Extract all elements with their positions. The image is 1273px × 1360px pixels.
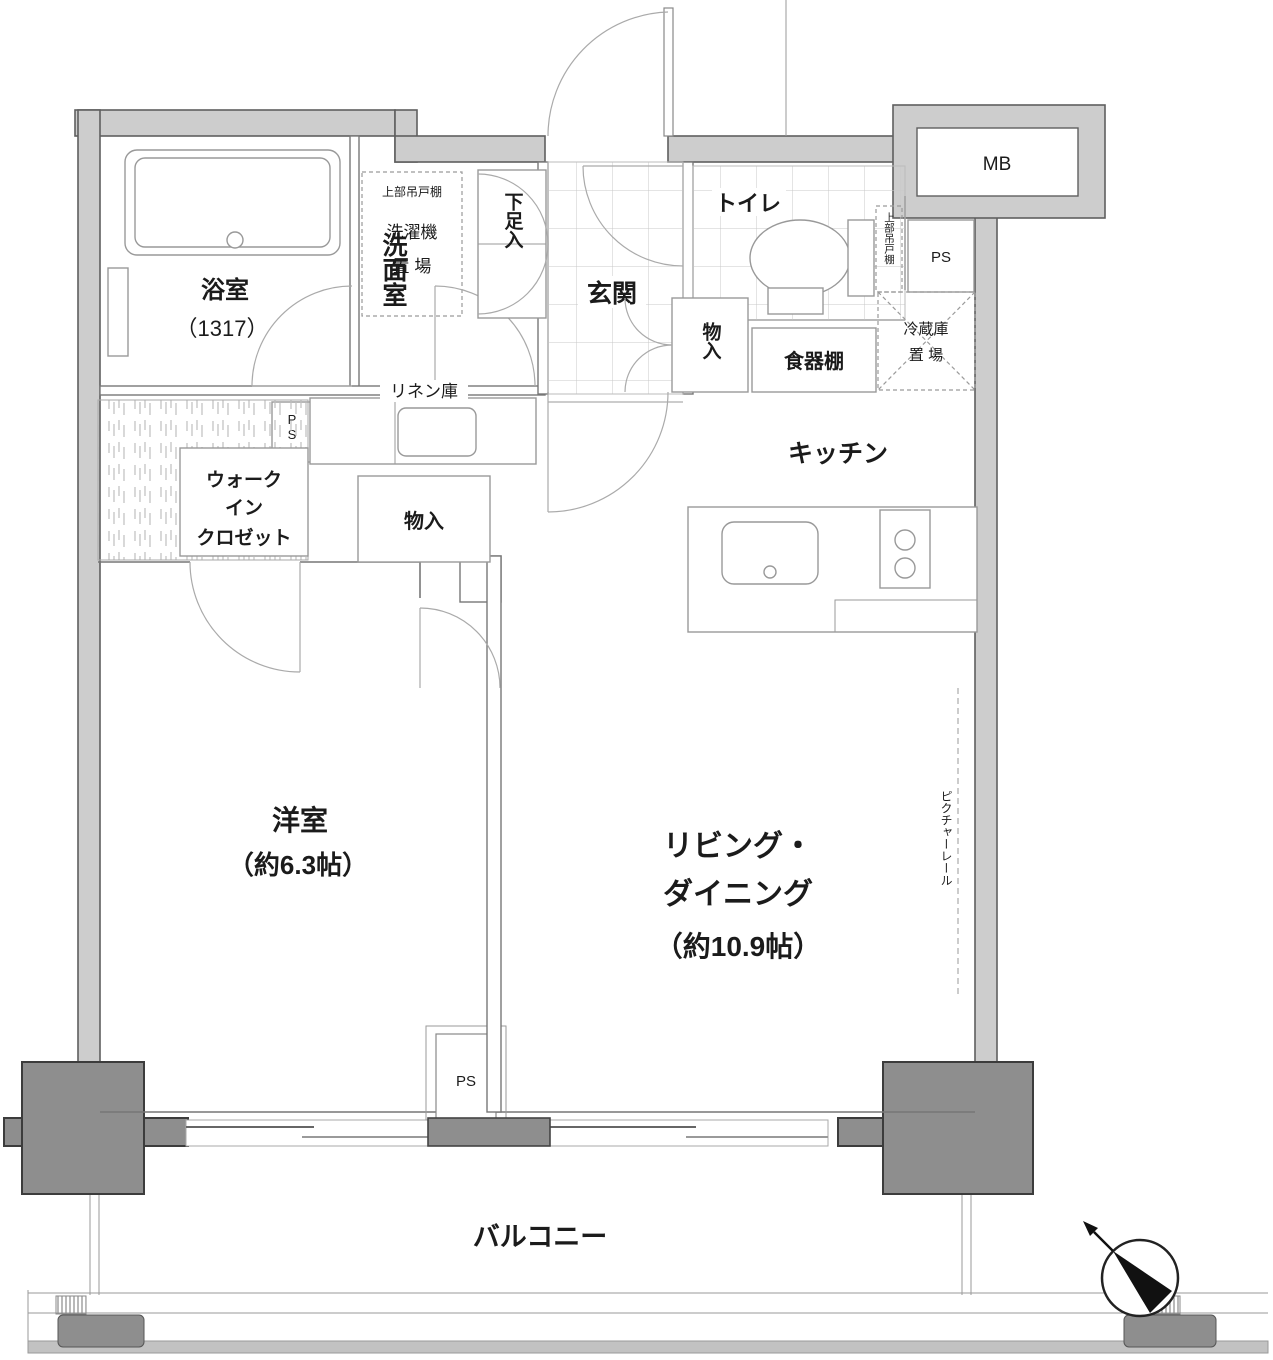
wic-door bbox=[190, 562, 300, 672]
picture-rail-label: ピクチャーレール bbox=[939, 790, 953, 886]
pillar-bottom-right bbox=[838, 1062, 1033, 1194]
entrance-door bbox=[548, 8, 673, 136]
toilet-fixture bbox=[750, 220, 874, 296]
balcony-railing bbox=[28, 1290, 1268, 1353]
floor-plan-page: バルコニー MB bbox=[0, 0, 1273, 1360]
living-label-3: （約10.9帖） bbox=[655, 930, 822, 962]
ps-top-label: PS bbox=[931, 249, 951, 266]
picture-rail: ピクチャーレール bbox=[939, 688, 958, 995]
center-closet-label: 物入 bbox=[404, 509, 444, 533]
fridge-label-2: 置 場 bbox=[909, 347, 943, 364]
living-label-2: ダイニング bbox=[663, 877, 813, 911]
shoe-cabinet-label: 下足入 bbox=[502, 192, 524, 249]
shoe-cabinet: 下足入 bbox=[478, 170, 548, 318]
hall-closet-label: 物入 bbox=[700, 321, 722, 360]
bath-counter bbox=[108, 268, 128, 356]
balcony: バルコニー bbox=[28, 1194, 1268, 1353]
washroom-label: 洗面室 bbox=[379, 232, 408, 307]
living-dining: リビング・ ダイニング （約10.9帖） ピクチャーレール bbox=[655, 688, 958, 995]
walk-in-closet: ウォーク イン クロゼット bbox=[98, 400, 308, 672]
western-room: 洋室 （約6.3帖） bbox=[228, 804, 368, 880]
living-label-1: リビング・ bbox=[663, 830, 813, 863]
bathtub-drain bbox=[227, 232, 243, 248]
meter-box: MB bbox=[893, 105, 1105, 218]
genkan-label: 玄関 bbox=[587, 279, 637, 308]
bathroom-label: 浴室 bbox=[201, 276, 249, 304]
cupboard-label: 食器棚 bbox=[784, 349, 844, 373]
stove-burner-2 bbox=[895, 558, 915, 578]
compass bbox=[1083, 1221, 1178, 1316]
bathroom: 浴室 （1317） bbox=[108, 150, 352, 386]
balcony-label: バルコニー bbox=[473, 1222, 607, 1252]
entrance: 玄関 下足入 bbox=[478, 8, 683, 394]
floor-plan-svg: バルコニー MB bbox=[0, 0, 1273, 1360]
pipe-space-top-right: PS bbox=[908, 220, 974, 292]
kitchen-faucet bbox=[764, 566, 776, 578]
laundry-shelf-label: 上部吊戸棚 bbox=[382, 184, 442, 199]
bathtub bbox=[125, 150, 340, 255]
bathroom-size-label: （1317） bbox=[176, 316, 269, 341]
center-closet: 物入 bbox=[358, 476, 490, 562]
mb-label: MB bbox=[983, 154, 1012, 175]
toilet-shelf-label: 上部吊戸棚 bbox=[883, 212, 895, 265]
pillar-bottom-left bbox=[4, 1062, 188, 1194]
railing-post-right bbox=[1124, 1315, 1216, 1347]
hall-living-door bbox=[548, 392, 668, 512]
railing-post-left bbox=[58, 1315, 144, 1347]
fridge-label-1: 冷蔵庫 bbox=[903, 321, 948, 338]
ps-bottom-label: PS bbox=[456, 1073, 476, 1090]
kitchen-counter bbox=[688, 507, 977, 632]
railing-post-hatch-left bbox=[56, 1296, 86, 1314]
washing-machine-space: 上部吊戸棚 洗濯機 置 場 bbox=[362, 172, 462, 316]
western-room-label: 洋室 bbox=[272, 804, 328, 836]
linen-label: リネン庫 bbox=[390, 382, 458, 401]
wic-label-3: クロゼット bbox=[196, 526, 291, 549]
kitchen: キッチン bbox=[688, 440, 977, 632]
kitchen-label: キッチン bbox=[788, 440, 888, 468]
wic-label-1: ウォーク bbox=[206, 469, 282, 491]
western-room-size: （約6.3帖） bbox=[228, 850, 368, 880]
stove-burner-1 bbox=[895, 530, 915, 550]
toilet-label: トイレ bbox=[715, 191, 781, 216]
wic-label-2: イン bbox=[225, 498, 263, 519]
vanity-sink bbox=[398, 408, 476, 456]
